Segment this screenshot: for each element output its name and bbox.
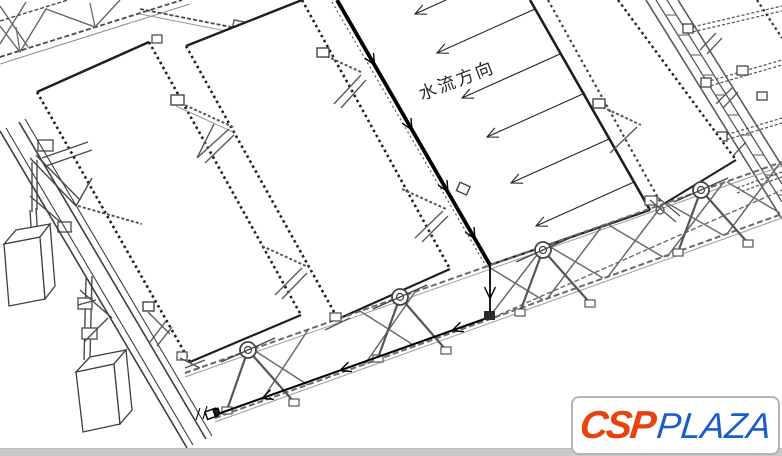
foundation-block xyxy=(76,364,120,432)
logo-text-csp: CSP xyxy=(578,404,657,448)
foundation-block xyxy=(4,237,45,306)
solar-field-line-drawing: 水流方向 xyxy=(0,0,782,456)
mirror-panels xyxy=(37,0,736,362)
pipe-corner-fitting xyxy=(484,311,495,320)
cad-screenshot: 水流方向 CSP PLAZA xyxy=(0,0,782,456)
csp-plaza-logo: CSP PLAZA xyxy=(571,396,780,455)
logo-text-plaza: PLAZA xyxy=(654,405,772,447)
